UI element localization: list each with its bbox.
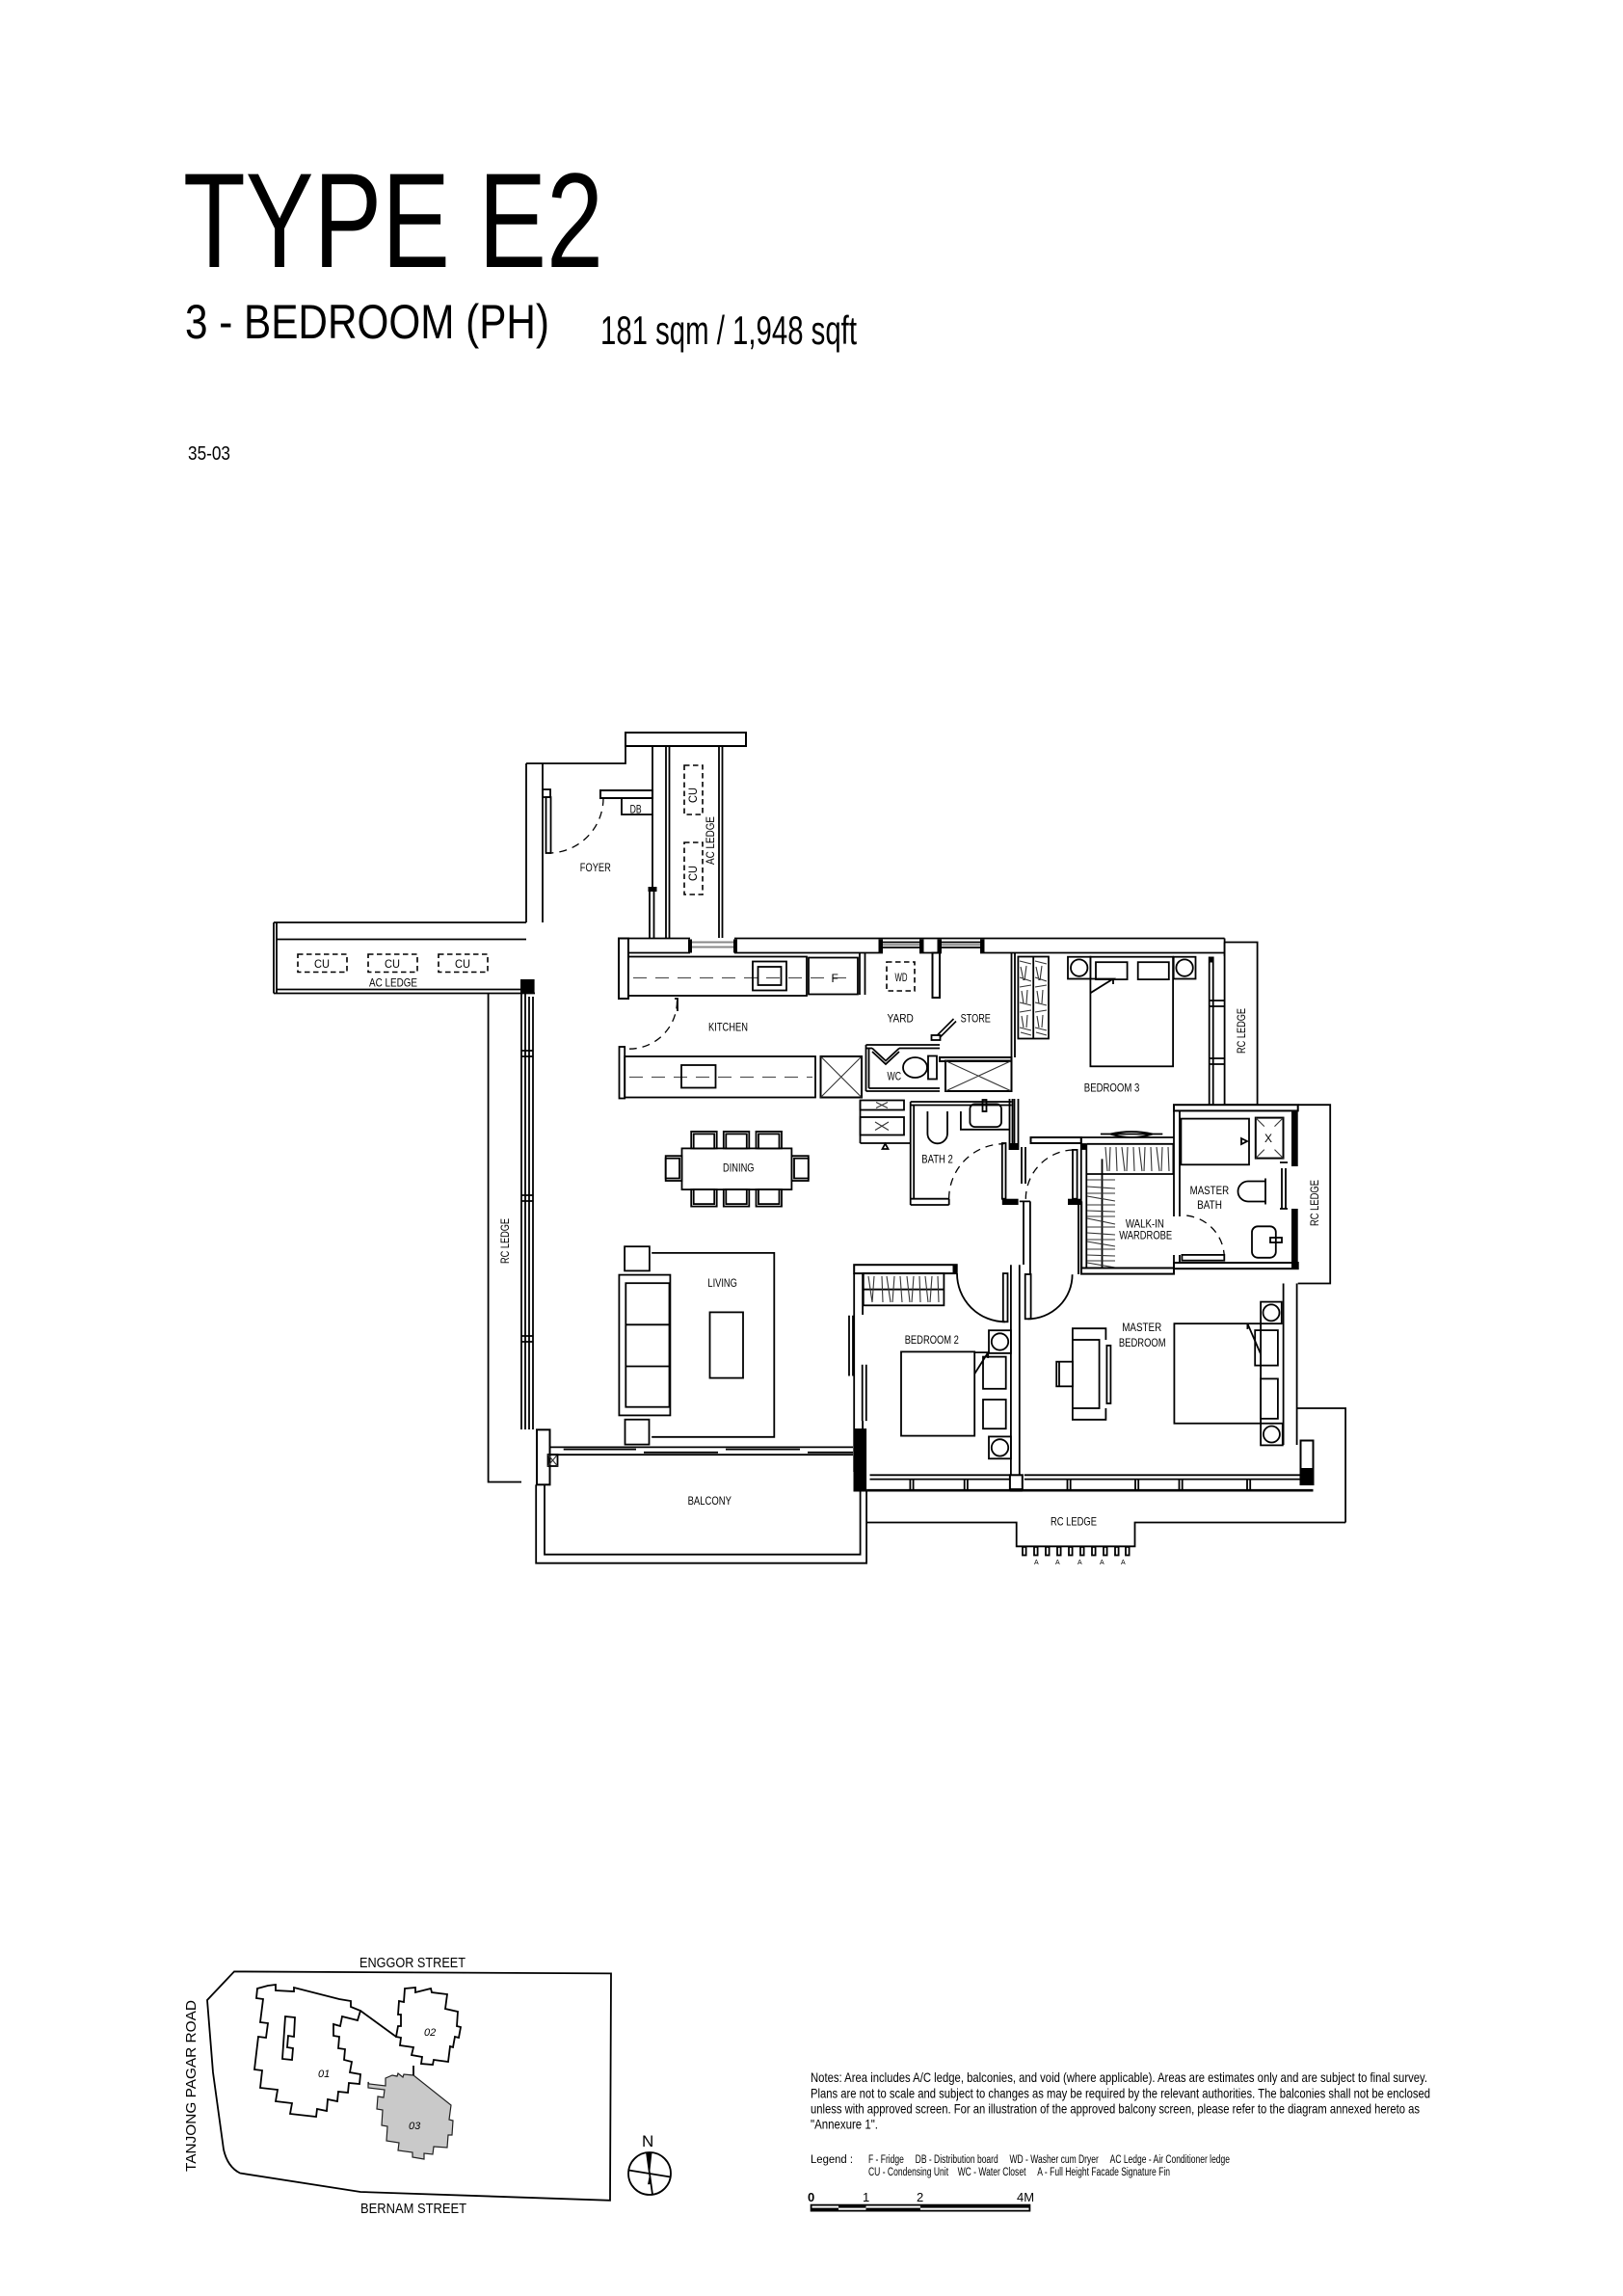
svg-text:RC LEDGE: RC LEDGE — [1235, 1008, 1248, 1054]
svg-text:CU - Condensing Unit WC - W: CU - Condensing Unit WC - Water Closet A… — [868, 2167, 1170, 2178]
svg-text:MASTER: MASTER — [1122, 1321, 1161, 1334]
svg-text:DB: DB — [630, 803, 642, 816]
svg-text:BATH 2: BATH 2 — [921, 1152, 953, 1165]
svg-text:RC LEDGE: RC LEDGE — [1051, 1515, 1097, 1529]
svg-text:BEDROOM 3: BEDROOM 3 — [1084, 1081, 1140, 1095]
svg-text:RC LEDGE: RC LEDGE — [1308, 1180, 1321, 1226]
svg-text:DINING: DINING — [723, 1161, 755, 1174]
svg-text:BERNAM STREET: BERNAM STREET — [360, 2201, 466, 2217]
svg-text:WD: WD — [895, 971, 908, 984]
svg-text:"Annexure 1".: "Annexure 1". — [811, 2117, 878, 2132]
svg-text:02: 02 — [424, 2027, 436, 2039]
svg-text:WC: WC — [888, 1070, 902, 1083]
svg-text:3 - BEDROOM (PH): 3 - BEDROOM (PH) — [185, 295, 549, 349]
svg-text:A: A — [1055, 1560, 1060, 1566]
svg-text:A: A — [1100, 1560, 1104, 1566]
svg-text:F - Fridge DB - Distributi: F - Fridge DB - Distribution board WD - … — [868, 2154, 1230, 2166]
svg-text:A: A — [1034, 1560, 1039, 1566]
svg-text:A: A — [1078, 1560, 1082, 1566]
svg-text:KITCHEN: KITCHEN — [708, 1021, 748, 1034]
svg-text:2: 2 — [917, 2190, 923, 2204]
svg-text:WARDROBE: WARDROBE — [1119, 1229, 1172, 1242]
svg-text:RC LEDGE: RC LEDGE — [498, 1218, 512, 1264]
svg-text:BEDROOM: BEDROOM — [1119, 1336, 1166, 1349]
svg-text:Legend :: Legend : — [811, 2154, 853, 2166]
svg-text:Plans are not to scale and sub: Plans are not to scale and subject to ch… — [811, 2085, 1430, 2100]
svg-text:CU: CU — [686, 788, 700, 803]
svg-text:LIVING: LIVING — [707, 1276, 737, 1290]
svg-text:CU: CU — [385, 957, 400, 971]
svg-text:Notes: Area includes A/C ledge: Notes: Area includes A/C ledge, balconie… — [811, 2069, 1427, 2085]
svg-text:0: 0 — [808, 2190, 814, 2204]
svg-text:F: F — [832, 972, 838, 985]
svg-text:ENGGOR STREET: ENGGOR STREET — [359, 1955, 466, 1971]
svg-text:YARD: YARD — [888, 1012, 915, 1026]
svg-text:N: N — [642, 2132, 653, 2150]
svg-text:AC LEDGE: AC LEDGE — [704, 816, 717, 865]
svg-text:STORE: STORE — [961, 1012, 991, 1026]
svg-text:A: A — [1121, 1560, 1126, 1566]
svg-text:BEDROOM 2: BEDROOM 2 — [905, 1333, 959, 1347]
svg-text:TANJONG PAGAR ROAD: TANJONG PAGAR ROAD — [183, 2000, 200, 2172]
svg-text:03: 03 — [409, 2121, 421, 2132]
svg-text:X: X — [1264, 1132, 1272, 1145]
svg-text:unless with approved screen. F: unless with approved screen. For an illu… — [811, 2101, 1420, 2117]
svg-text:181 sqm / 1,948 sqft: 181 sqm / 1,948 sqft — [600, 307, 857, 353]
svg-text:01: 01 — [318, 2069, 330, 2080]
svg-text:35-03: 35-03 — [188, 443, 230, 465]
svg-text:FOYER: FOYER — [580, 861, 611, 874]
svg-text:BALCONY: BALCONY — [688, 1494, 732, 1508]
svg-text:BATH: BATH — [1197, 1198, 1222, 1212]
svg-text:4M: 4M — [1017, 2190, 1034, 2204]
svg-text:AC LEDGE: AC LEDGE — [369, 975, 417, 989]
svg-text:CU: CU — [455, 957, 470, 971]
svg-text:TYPE E2: TYPE E2 — [183, 145, 603, 296]
svg-text:CU: CU — [686, 866, 700, 881]
svg-text:CU: CU — [314, 957, 330, 971]
svg-text:1: 1 — [863, 2190, 869, 2204]
svg-text:MASTER: MASTER — [1190, 1184, 1230, 1197]
